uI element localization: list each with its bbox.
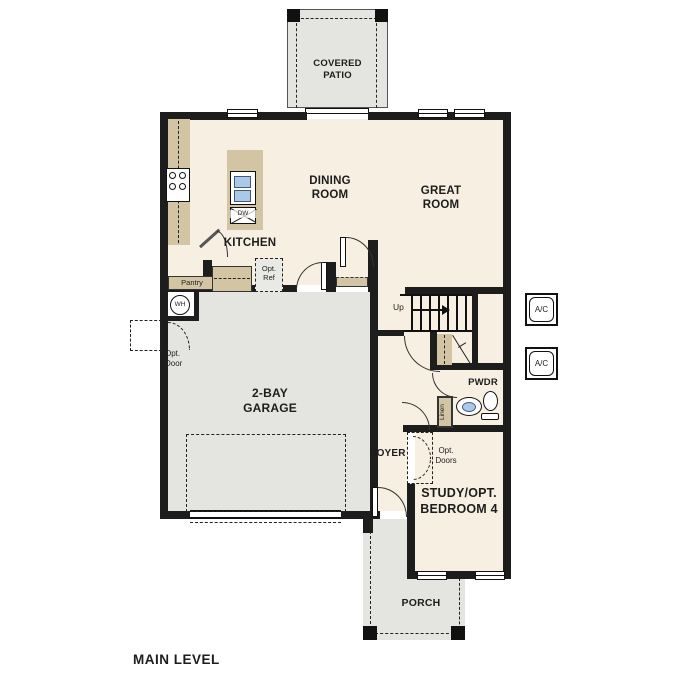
linen-label: Linen xyxy=(439,398,451,426)
stairs-up-arrowhead xyxy=(442,305,450,315)
stair-tread xyxy=(429,294,431,330)
wall xyxy=(326,262,336,292)
opt-ref-label: Opt. Ref xyxy=(256,259,282,282)
wall xyxy=(370,292,378,511)
pantry-label: Pantry xyxy=(166,278,218,287)
burner-icon xyxy=(169,183,176,190)
great-room-label: GREAT ROOM xyxy=(391,184,491,213)
kitchen-label: KITCHEN xyxy=(200,236,300,250)
window xyxy=(454,109,485,118)
sliding-glass-door xyxy=(305,108,369,114)
toilet-tank xyxy=(481,413,499,420)
window xyxy=(418,109,448,118)
ac-unit: A/C xyxy=(525,293,558,326)
garage-door-clearance-outline xyxy=(186,434,346,512)
window xyxy=(475,571,505,580)
window xyxy=(227,109,258,118)
sink-basin xyxy=(234,176,251,188)
garage-entry-step xyxy=(336,277,368,287)
dishwasher-label: DW xyxy=(230,210,256,218)
opt-door-label: Opt. Door xyxy=(165,349,182,368)
stair-tread xyxy=(456,294,458,330)
stair-edge xyxy=(404,330,472,332)
wall xyxy=(472,293,478,363)
water-heater-icon: WH xyxy=(170,295,190,315)
garage-label: 2-BAY GARAGE xyxy=(220,386,320,416)
linen-closet: Linen xyxy=(437,396,453,428)
wall xyxy=(194,292,199,319)
porch-post xyxy=(451,626,465,640)
wall xyxy=(363,519,373,533)
stair-tread xyxy=(465,294,467,330)
sink-basin xyxy=(234,190,251,202)
foyer-label: FOYER xyxy=(368,448,408,461)
window xyxy=(417,571,447,580)
powder-room-label: PWDR xyxy=(458,377,508,389)
stairs-up-arrow xyxy=(412,309,442,311)
wall xyxy=(160,511,190,519)
closet-dash xyxy=(444,335,445,364)
burner-icon xyxy=(179,172,186,179)
burner-icon xyxy=(179,183,186,190)
floor-plan: COVERED PATIO DW xyxy=(0,0,687,687)
porch-edge-outline xyxy=(370,633,459,634)
patio-post xyxy=(375,9,388,22)
toilet-icon xyxy=(483,391,498,411)
stair-tread xyxy=(420,294,422,330)
sink-basin xyxy=(462,402,476,412)
kitchen-counter xyxy=(212,266,252,292)
porch-edge-outline xyxy=(370,521,371,634)
ac-unit-inner xyxy=(529,351,554,376)
porch-label: PORCH xyxy=(381,597,461,610)
stair-tread xyxy=(411,294,413,330)
dining-room-label: DINING ROOM xyxy=(280,174,380,203)
patio-post xyxy=(287,9,300,22)
study-bedroom-label: STUDY/OPT. BEDROOM 4 xyxy=(407,486,511,517)
optional-door-outline xyxy=(130,320,162,351)
counter-centerline xyxy=(214,278,250,279)
ac-unit-inner xyxy=(529,297,554,322)
water-heater-label: WH xyxy=(171,296,189,314)
wall xyxy=(405,287,511,294)
stairs-up-label: Up xyxy=(393,302,404,312)
plan-title: MAIN LEVEL xyxy=(133,652,220,669)
opt-doors-label: Opt. Doors xyxy=(430,446,462,465)
stair-tread xyxy=(438,294,440,330)
wall xyxy=(378,330,404,336)
covered-patio-label: COVERED PATIO xyxy=(287,58,388,82)
garage-door-swing-line xyxy=(190,522,341,523)
porch-post xyxy=(363,626,377,640)
wall xyxy=(168,316,199,321)
ac-unit: A/C xyxy=(525,347,558,380)
burner-icon xyxy=(169,172,176,179)
optional-refrigerator-outline: Opt. Ref xyxy=(255,258,283,292)
